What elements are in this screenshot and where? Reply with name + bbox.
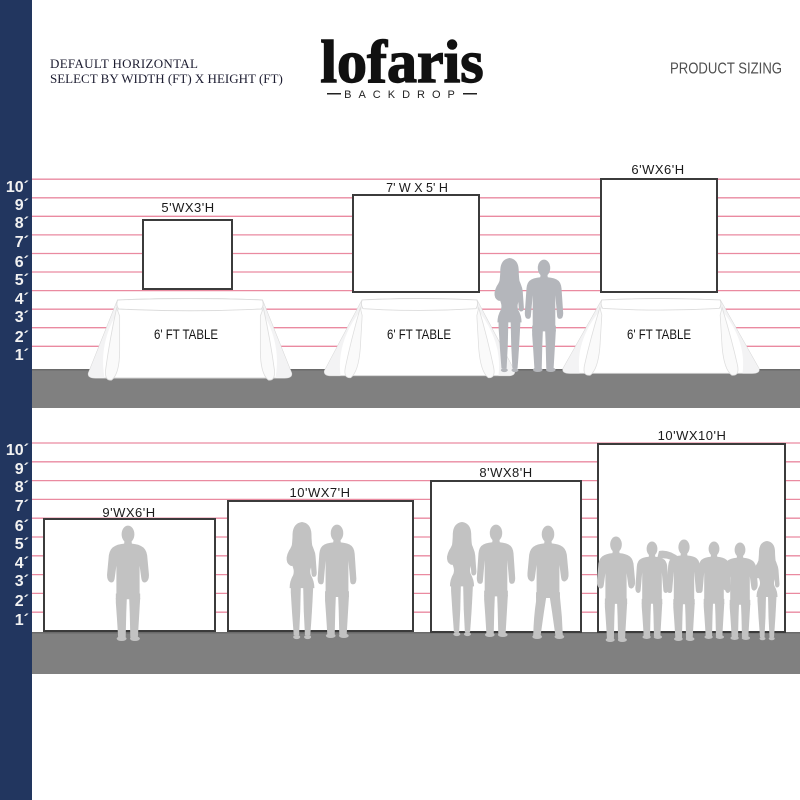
svg-text:2´: 2´ <box>15 329 29 346</box>
svg-text:8´: 8´ <box>15 215 29 232</box>
svg-text:6´: 6´ <box>15 254 29 271</box>
svg-text:6´: 6´ <box>15 518 29 535</box>
svg-text:9´: 9´ <box>15 461 29 478</box>
svg-text:6' FT TABLE: 6' FT TABLE <box>387 327 451 342</box>
svg-text:4´: 4´ <box>15 555 29 572</box>
svg-text:3´: 3´ <box>15 573 29 590</box>
svg-text:7´: 7´ <box>15 498 29 515</box>
svg-text:6' FT TABLE: 6' FT TABLE <box>627 327 691 342</box>
svg-text:8'WX8'H: 8'WX8'H <box>479 465 532 480</box>
svg-text:10´: 10´ <box>6 442 29 459</box>
svg-text:9'WX6'H: 9'WX6'H <box>102 505 155 520</box>
svg-text:5´: 5´ <box>15 272 29 289</box>
svg-text:PRODUCT SIZING: PRODUCT SIZING <box>670 61 782 78</box>
svg-text:7' W X 5' H: 7' W X 5' H <box>386 181 448 195</box>
svg-text:BACKDROP: BACKDROP <box>344 89 462 101</box>
svg-text:8´: 8´ <box>15 479 29 496</box>
svg-text:3´: 3´ <box>15 309 29 326</box>
svg-text:1´: 1´ <box>15 347 29 364</box>
svg-text:9´: 9´ <box>15 197 29 214</box>
svg-text:1´: 1´ <box>15 612 29 629</box>
svg-text:10´: 10´ <box>6 179 29 196</box>
svg-text:7´: 7´ <box>15 234 29 251</box>
svg-text:lofaris: lofaris <box>320 29 483 95</box>
svg-text:SELECT BY WIDTH (FT) X HEIGHT: SELECT BY WIDTH (FT) X HEIGHT (FT) <box>50 71 283 86</box>
svg-text:5´: 5´ <box>15 536 29 553</box>
svg-text:5'WX3'H: 5'WX3'H <box>161 200 214 215</box>
svg-text:2´: 2´ <box>15 593 29 610</box>
svg-text:4´: 4´ <box>15 291 29 308</box>
svg-text:DEFAULT HORIZONTAL: DEFAULT HORIZONTAL <box>50 56 198 71</box>
svg-text:10'WX7'H: 10'WX7'H <box>290 485 351 500</box>
svg-text:6' FT TABLE: 6' FT TABLE <box>154 327 218 342</box>
svg-text:6'WX6'H: 6'WX6'H <box>631 162 684 177</box>
svg-text:10'WX10'H: 10'WX10'H <box>658 428 727 443</box>
